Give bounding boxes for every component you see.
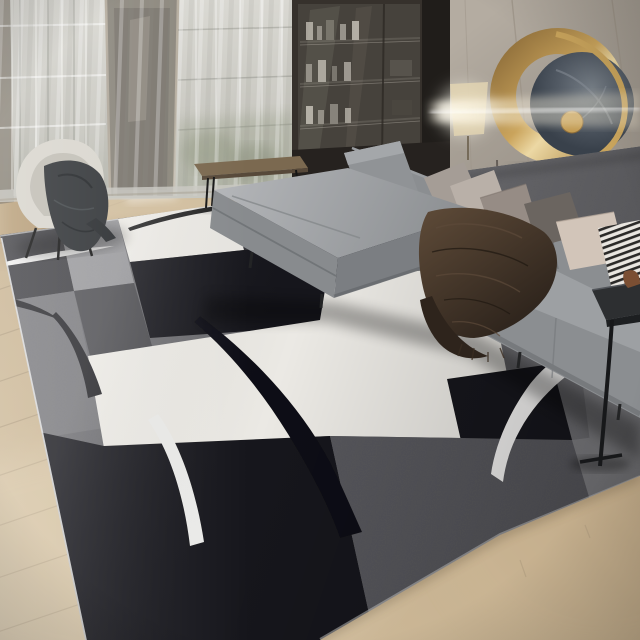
vignette [0,0,640,640]
scene-canvas [0,0,640,640]
living-room-photo [0,0,640,640]
